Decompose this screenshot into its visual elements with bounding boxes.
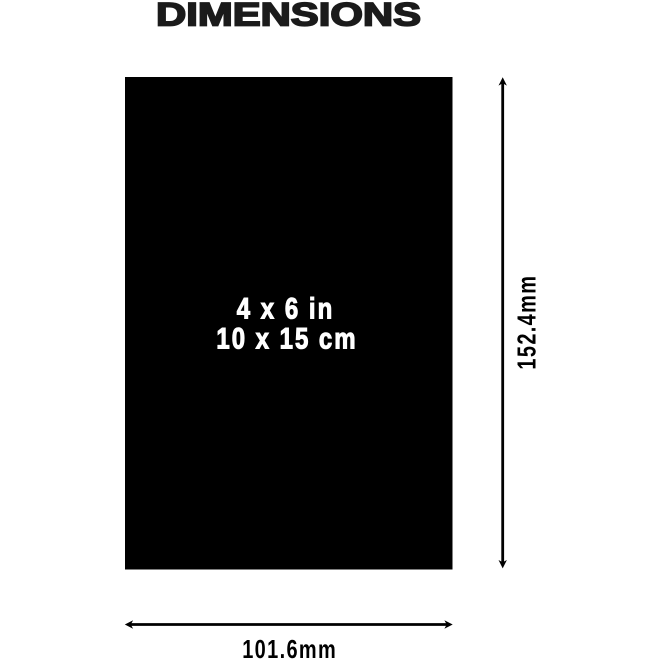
svg-text:101.6mm: 101.6mm bbox=[242, 635, 336, 660]
svg-text:10 x 15 cm: 10 x 15 cm bbox=[216, 321, 355, 355]
svg-text:DIMENSIONS: DIMENSIONS bbox=[156, 0, 421, 32]
svg-text:152.4mm: 152.4mm bbox=[512, 276, 541, 370]
